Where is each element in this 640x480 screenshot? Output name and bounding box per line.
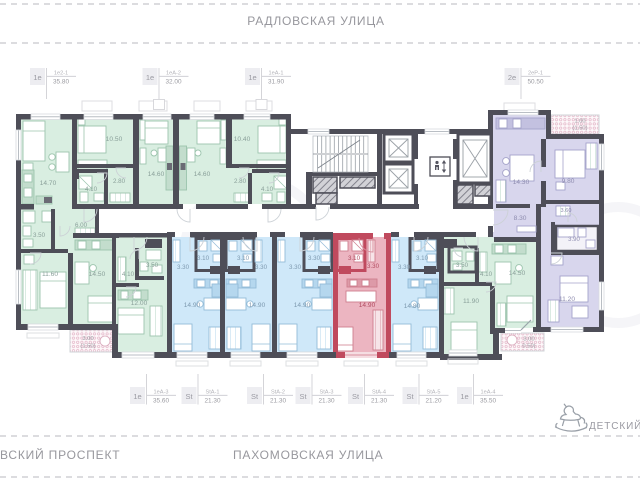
svg-text:21.20: 21.20: [426, 398, 442, 405]
svg-text:2.80: 2.80: [113, 178, 126, 185]
svg-text:14.30: 14.30: [513, 179, 530, 186]
svg-text:0.50): 0.50): [522, 344, 535, 350]
svg-text:21.30: 21.30: [205, 398, 221, 405]
svg-text:3.00: 3.00: [82, 336, 93, 342]
svg-text:14.90: 14.90: [294, 302, 311, 309]
svg-text:3.50: 3.50: [33, 232, 46, 239]
svg-text:2е: 2е: [508, 73, 516, 82]
svg-text:St: St: [299, 392, 307, 401]
svg-text:1еА-4: 1еА-4: [481, 390, 496, 396]
svg-text:21.30: 21.30: [270, 398, 286, 405]
svg-text:4.10: 4.10: [261, 186, 274, 193]
svg-text:14.60: 14.60: [194, 171, 211, 178]
svg-text:1е2-1: 1е2-1: [54, 71, 68, 77]
svg-text:35.60: 35.60: [153, 398, 169, 405]
svg-text:3.10: 3.10: [237, 255, 250, 262]
svg-text:StА-5: StА-5: [427, 390, 441, 396]
svg-text:4.10: 4.10: [122, 271, 135, 278]
svg-text:3.90: 3.90: [568, 237, 580, 243]
svg-text:32.00: 32.00: [166, 79, 182, 86]
svg-text:21.30: 21.30: [319, 398, 335, 405]
svg-text:3.00: 3.00: [523, 337, 534, 343]
svg-text:8.30: 8.30: [514, 215, 527, 222]
svg-text:10.50: 10.50: [106, 136, 123, 143]
svg-text:St: St: [352, 392, 360, 401]
svg-text:St: St: [406, 392, 414, 401]
svg-text:35.50: 35.50: [480, 398, 496, 405]
svg-text:1е: 1е: [133, 392, 141, 401]
svg-text:ПАХОМОВСКАЯ УЛИЦА: ПАХОМОВСКАЯ УЛИЦА: [233, 448, 383, 462]
svg-text:3.10: 3.10: [197, 255, 210, 262]
svg-text:4.10: 4.10: [85, 186, 98, 193]
svg-text:31.90: 31.90: [268, 79, 284, 86]
svg-text:14.50: 14.50: [89, 271, 106, 278]
svg-text:3.30: 3.30: [308, 255, 321, 262]
svg-text:14.90: 14.90: [184, 302, 201, 309]
svg-text:3.30: 3.30: [177, 264, 190, 271]
svg-text:1е: 1е: [146, 73, 154, 82]
svg-text:2еР-1: 2еР-1: [528, 71, 543, 77]
svg-text:1.00: 1.00: [574, 119, 585, 125]
svg-text:StА-3: StА-3: [320, 390, 334, 396]
svg-text:21.30: 21.30: [371, 398, 387, 405]
svg-text:3.50: 3.50: [456, 262, 469, 269]
svg-text:1еА-3: 1еА-3: [154, 390, 169, 396]
svg-text:14.50: 14.50: [509, 270, 526, 277]
svg-text:St: St: [251, 392, 259, 401]
svg-text:50.50: 50.50: [528, 79, 544, 86]
svg-text:1е: 1е: [460, 392, 468, 401]
svg-text:1еА-2: 1еА-2: [166, 71, 181, 77]
svg-text:3.10: 3.10: [416, 255, 429, 262]
svg-text:6.00: 6.00: [75, 222, 88, 229]
svg-text:35.80: 35.80: [53, 79, 69, 86]
svg-text:(1.50): (1.50): [572, 126, 587, 132]
svg-text:StА-4: StА-4: [372, 390, 386, 396]
svg-text:РАДЛОВСКАЯ УЛИЦА: РАДЛОВСКАЯ УЛИЦА: [247, 14, 385, 28]
svg-text:11.90: 11.90: [463, 298, 479, 305]
svg-text:14.80: 14.80: [404, 303, 421, 310]
svg-text:1еА-1: 1еА-1: [269, 71, 284, 77]
svg-text:3.60: 3.60: [561, 208, 572, 214]
svg-text:11.20: 11.20: [559, 296, 575, 303]
svg-text:ВСКИЙ ПРОСПЕКТ: ВСКИЙ ПРОСПЕКТ: [0, 447, 120, 462]
svg-text:3.30: 3.30: [398, 264, 411, 271]
svg-text:(1.50): (1.50): [80, 344, 95, 350]
svg-text:14.90: 14.90: [359, 302, 376, 309]
svg-text:1е: 1е: [248, 73, 256, 82]
svg-text:11.60: 11.60: [42, 271, 58, 278]
svg-text:9.80: 9.80: [562, 178, 575, 185]
svg-text:3.30: 3.30: [255, 264, 268, 271]
svg-text:4.10: 4.10: [480, 271, 493, 278]
svg-text:StА-1: StА-1: [206, 390, 220, 396]
svg-text:StА-2: StА-2: [271, 390, 285, 396]
svg-text:14.70: 14.70: [40, 180, 57, 187]
svg-text:2.80: 2.80: [234, 178, 247, 185]
svg-text:3.30: 3.30: [367, 263, 380, 270]
svg-text:10.40: 10.40: [234, 136, 251, 143]
svg-text:1е: 1е: [33, 73, 41, 82]
svg-text:ДЕТСКИЙ: ДЕТСКИЙ: [589, 419, 640, 432]
svg-text:12.00: 12.00: [131, 300, 148, 307]
svg-text:St: St: [185, 392, 193, 401]
svg-text:3.10: 3.10: [348, 255, 361, 262]
svg-text:14.90: 14.90: [249, 302, 266, 309]
svg-text:3.30: 3.30: [289, 264, 302, 271]
svg-text:14.60: 14.60: [148, 171, 165, 178]
svg-text:3.50: 3.50: [146, 262, 159, 269]
